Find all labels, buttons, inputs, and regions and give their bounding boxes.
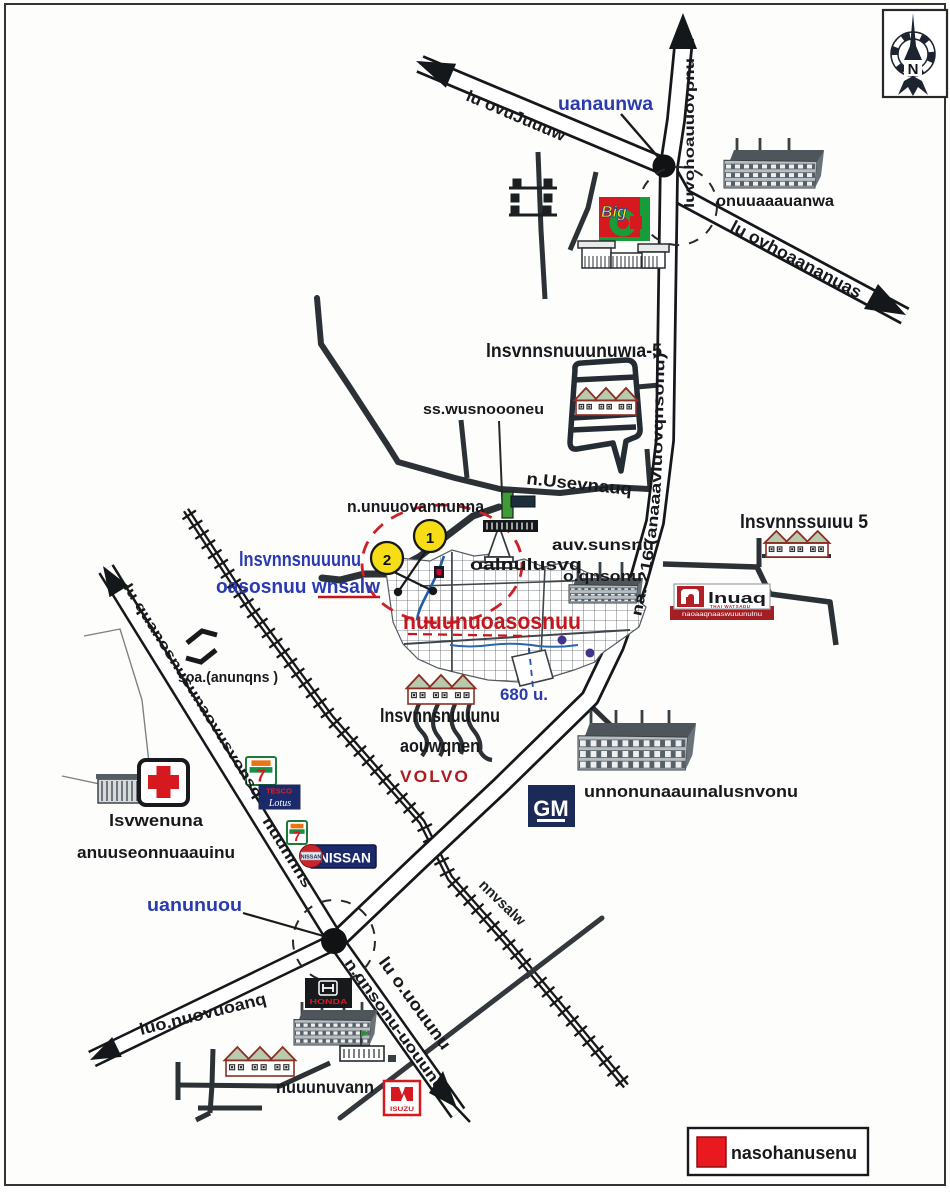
svg-text:HONDA: HONDA (310, 999, 348, 1006)
svg-text:n.unuuovannunna: n.unuuovannunna (347, 497, 484, 516)
svg-text:THAI WATSADU: THAI WATSADU (710, 604, 750, 609)
svg-text:lnsvnnsnuuunu: lnsvnnsnuuunu (239, 549, 361, 571)
svg-text:NISSAN: NISSAN (301, 855, 322, 861)
svg-text:nasohanusenu: nasohanusenu (731, 1143, 857, 1163)
svg-text:Big: Big (601, 204, 627, 221)
svg-text:onuuaaauanwa: onuuaaauanwa (716, 193, 834, 210)
svg-text:auv.sunsnu: auv.sunsnu (552, 537, 654, 554)
svg-text:GM: GM (533, 796, 568, 821)
svg-text:oasosnuu wnsalw: oasosnuu wnsalw (216, 576, 380, 598)
svg-text:ISUZU: ISUZU (390, 1106, 414, 1113)
svg-text:7: 7 (293, 829, 301, 845)
svg-text:TESCO: TESCO (266, 787, 292, 796)
svg-text:lnsvnnsnuuunuwıa-5: lnsvnnsnuuunuwıa-5 (486, 341, 662, 362)
svg-text:luvohoauuovpnu: luvohoauuovpnu (682, 58, 697, 208)
svg-text:lnsvnnsnuuunu: lnsvnnsnuuunu (380, 706, 500, 727)
svg-text:ss.wusnoooneu: ss.wusnoooneu (423, 401, 544, 418)
svg-text:uanaunwa: uanaunwa (558, 94, 653, 115)
svg-text:naoaaqnaaswuuunulnu: naoaaqnaaswuuunulnu (682, 612, 762, 618)
svg-text:N: N (908, 61, 919, 78)
svg-text:nuuunuoasosnuu: nuuunuoasosnuu (403, 608, 581, 634)
svg-text:2: 2 (383, 552, 391, 569)
svg-text:oalnulusvq: oalnulusvq (470, 556, 582, 574)
svg-text:lnsvnnssuıuu 5: lnsvnnssuıuu 5 (740, 512, 868, 533)
svg-text:aouwqnen: aouwqnen (400, 736, 480, 756)
svg-text:Lotus: Lotus (268, 798, 291, 809)
svg-text:VOLVO: VOLVO (400, 768, 470, 786)
svg-text:nuuunuvann: nuuunuvann (276, 1077, 374, 1097)
svg-text:lsvwenuna: lsvwenuna (109, 811, 204, 830)
svg-text:NISSAN: NISSAN (319, 850, 371, 866)
svg-text:uanunuou: uanunuou (147, 895, 242, 915)
svg-text:680 u.: 680 u. (500, 685, 548, 704)
svg-text:1: 1 (426, 530, 434, 547)
svg-text:unnonunaauınalusnvonu: unnonunaauınalusnvonu (584, 782, 798, 801)
svg-text:anuuseonnuaauinu: anuuseonnuaauinu (77, 843, 235, 862)
